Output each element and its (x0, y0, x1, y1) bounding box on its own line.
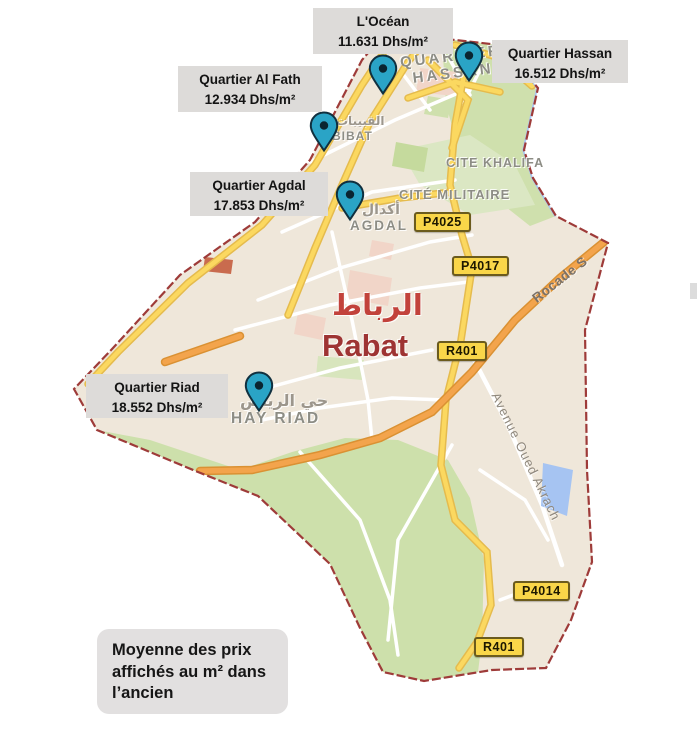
pin-hassan[interactable] (454, 41, 484, 83)
map-label-rabat-arabic: الرباط (332, 288, 423, 322)
price-label-hassan: Quartier Hassan 16.512 Dhs/m² (492, 40, 628, 83)
scrollbar-fragment (690, 283, 697, 299)
road-badge-p4017: P4017 (452, 256, 509, 276)
map-label-agdal-arabic: أكدال (362, 202, 400, 218)
price-label-hassan-price: 16.512 Dhs/m² (492, 64, 628, 84)
map-label-rabat: Rabat (322, 328, 408, 364)
price-label-hassan-area: Quartier Hassan (492, 44, 628, 64)
price-label-al-fath-area: Quartier Al Fath (178, 70, 322, 90)
price-label-ocean: L'Océan 11.631 Dhs/m² (313, 8, 453, 54)
price-label-agdal-price: 17.853 Dhs/m² (190, 196, 328, 216)
price-label-al-fath: Quartier Al Fath 12.934 Dhs/m² (178, 66, 322, 112)
infographic-canvas: QUARTIER HASSAN القبيبات BIBAT CITE KHAL… (0, 0, 697, 731)
pin-agdal[interactable] (335, 180, 365, 222)
price-label-agdal: Quartier Agdal 17.853 Dhs/m² (190, 172, 328, 216)
pin-al-fath[interactable] (309, 111, 339, 153)
map-label-qbibat-arabic: القبيبات (336, 114, 385, 128)
road-badge-p4014: P4014 (513, 581, 570, 601)
price-label-ocean-area: L'Océan (313, 12, 453, 32)
price-label-riad-price: 18.552 Dhs/m² (86, 398, 228, 418)
price-label-al-fath-price: 12.934 Dhs/m² (178, 90, 322, 110)
price-label-ocean-price: 11.631 Dhs/m² (313, 32, 453, 52)
price-label-agdal-area: Quartier Agdal (190, 176, 328, 196)
rabat-map (0, 0, 697, 731)
price-label-riad-area: Quartier Riad (86, 378, 228, 398)
map-label-cite-militaire: CITÉ MILITAIRE (399, 187, 510, 202)
road-badge-r401-north: R401 (437, 341, 487, 361)
road-badge-r401-south: R401 (474, 637, 524, 657)
map-tiles (0, 0, 697, 731)
caption-line3: l’ancien (112, 683, 280, 705)
map-label-cite-khalifa: CITE KHALIFA (446, 156, 544, 170)
pin-ocean[interactable] (368, 54, 398, 96)
caption-line2: affichés au m² dans (112, 662, 280, 684)
price-label-riad: Quartier Riad 18.552 Dhs/m² (86, 374, 228, 418)
pin-riad[interactable] (244, 371, 274, 413)
road-badge-p4025: P4025 (414, 212, 471, 232)
caption-line1: Moyenne des prix (112, 640, 280, 662)
caption-box: Moyenne des prix affichés au m² dans l’a… (97, 629, 288, 714)
